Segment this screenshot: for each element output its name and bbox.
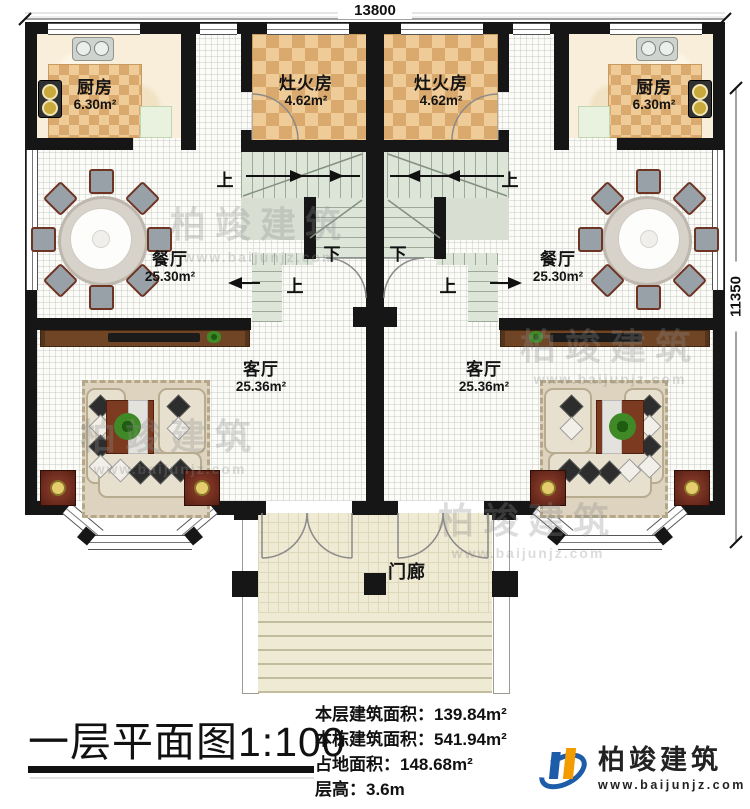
room-name: 灶火房	[261, 74, 351, 93]
room-name: 餐厅	[125, 250, 215, 269]
room-label-dining-left: 餐厅 25.30m²	[125, 250, 215, 284]
info-value: 3.6m	[366, 780, 405, 799]
room-area: 25.36m²	[439, 379, 529, 394]
room-name: 灶火房	[396, 74, 486, 93]
area-info: 本层建筑面积：139.84m² 本栋建筑面积：541.94m² 占地面积：148…	[315, 702, 507, 802]
room-label-porch: 门廊	[367, 562, 447, 582]
room-label-kitchen-right: 厨房 6.30m²	[614, 78, 694, 112]
company-name: 柏竣建筑	[598, 747, 746, 774]
plan-title: 一层平面图1:100	[28, 708, 346, 768]
company-url: www.baijunjz.com	[598, 778, 746, 792]
stair-up-label: 上	[280, 272, 310, 297]
company-logo-icon	[536, 740, 590, 799]
info-line: 本层建筑面积：139.84m²	[315, 702, 507, 727]
info-value: 541.94m²	[434, 730, 507, 749]
room-label-stove-left: 灶火房 4.62m²	[261, 74, 351, 108]
room-name: 客厅	[439, 360, 529, 379]
room-label-living-left: 客厅 25.36m²	[216, 360, 306, 394]
room-area: 4.62m²	[261, 93, 351, 108]
room-label-stove-right: 灶火房 4.62m²	[396, 74, 486, 108]
room-label-living-right: 客厅 25.36m²	[439, 360, 529, 394]
company-logo: 柏竣建筑 www.baijunjz.com	[536, 740, 746, 799]
room-area: 6.30m²	[55, 97, 135, 112]
room-name: 客厅	[216, 360, 306, 379]
info-line: 本栋建筑面积：541.94m²	[315, 727, 507, 752]
info-label: 本栋建筑面积：	[315, 730, 434, 749]
room-area: 25.30m²	[125, 269, 215, 284]
room-name: 门廊	[367, 562, 447, 582]
room-name: 餐厅	[513, 250, 603, 269]
room-area: 4.62m²	[396, 93, 486, 108]
stair-down-label: 下	[383, 240, 413, 265]
room-area: 6.30m²	[614, 97, 694, 112]
room-area: 25.30m²	[513, 269, 603, 284]
stair-up-label: 上	[495, 166, 525, 191]
room-area: 25.36m²	[216, 379, 306, 394]
stair-down-label: 下	[317, 240, 347, 265]
dimension-width: 13800	[338, 2, 412, 19]
info-line: 占地面积：148.68m²	[315, 752, 507, 777]
title-underline-thin	[30, 777, 314, 779]
company-logo-textblock: 柏竣建筑 www.baijunjz.com	[598, 747, 746, 792]
room-label-dining-right: 餐厅 25.30m²	[513, 250, 603, 284]
info-label: 占地面积：	[315, 755, 400, 774]
info-value: 148.68m²	[400, 755, 473, 774]
plan-title-text: 一层平面图	[28, 719, 238, 765]
info-label: 本层建筑面积：	[315, 705, 434, 724]
room-label-kitchen-left: 厨房 6.30m²	[55, 78, 135, 112]
dimension-height: 11350	[728, 262, 745, 332]
floor-plan-page: 柏竣建筑 www.baijunjz.com 柏竣建筑 www.baijunjz.…	[0, 0, 750, 809]
room-name: 厨房	[55, 78, 135, 97]
info-label: 层高：	[315, 780, 366, 799]
title-underline	[28, 766, 314, 773]
title-block: 一层平面图1:100 本层建筑面积：139.84m² 本栋建筑面积：541.94…	[0, 700, 750, 809]
stair-up-label: 上	[433, 272, 463, 297]
room-name: 厨房	[614, 78, 694, 97]
stair-up-label: 上	[210, 166, 240, 191]
info-value: 139.84m²	[434, 705, 507, 724]
info-line: 层高：3.6m	[315, 777, 507, 802]
